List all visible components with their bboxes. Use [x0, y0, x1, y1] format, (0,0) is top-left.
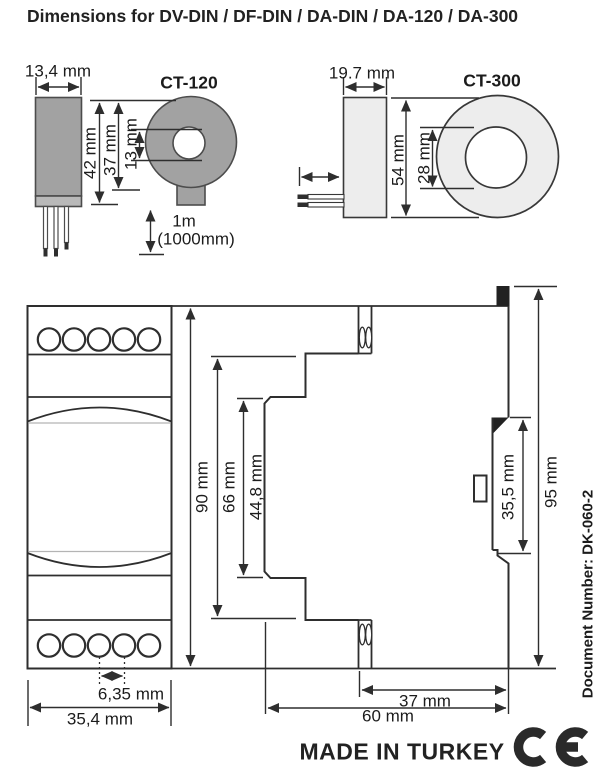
module-panel-height-label: 44,8 mm — [247, 454, 264, 520]
module-terminal-pitch-label: 6,35 mm — [98, 686, 164, 703]
side-terminal-bottom — [359, 620, 372, 669]
ct300-title: CT-300 — [463, 72, 520, 90]
module-overall-height-label: 95 mm — [543, 456, 560, 508]
module-front-height-label: 90 mm — [194, 461, 211, 513]
din-hook-catch — [493, 418, 509, 435]
module-overall-depth-label: 60 mm — [362, 708, 414, 725]
document-number-label: Document Number: DK-060-2 — [580, 490, 597, 698]
made-in-label: MADE IN TURKEY — [299, 739, 504, 766]
ct120-side-view — [36, 98, 82, 257]
ct300-wires — [298, 195, 345, 208]
module-body-height-label: 66 mm — [221, 461, 238, 513]
dimensions-drawing-page: Dimensions for DV-DIN / DF-DIN / DA-DIN … — [0, 0, 600, 774]
ct120-cable-length-label: 1m — [172, 213, 196, 230]
ct120-title: CT-120 — [160, 74, 217, 92]
module-rail-recess-label: 35,5 mm — [500, 454, 517, 520]
terminal-holes-bottom — [38, 634, 160, 656]
terminal-holes-top — [38, 328, 160, 350]
ct300-side-view — [298, 98, 387, 218]
ct120-wires — [44, 207, 69, 257]
ct300-width-dim-label: 19.7 mm — [329, 65, 395, 82]
ct120-cable-length-mm-label: (1000mm) — [157, 231, 234, 248]
ct300-hole-dim-label: 28 mm — [415, 132, 432, 184]
technical-drawing-canvas — [0, 0, 600, 774]
ct120-hole-dim-label: 13 mm — [122, 118, 139, 170]
ce-mark-icon — [518, 732, 585, 762]
ct120-width-dim-label: 13,4 mm — [25, 63, 91, 80]
module-front-view — [28, 306, 172, 687]
ct300-front-view — [437, 96, 559, 218]
ct120-front-view — [146, 97, 237, 206]
din-release-tab-top — [497, 286, 510, 306]
ct120-outer-dim-label: 37 mm — [102, 124, 119, 176]
ct120-height-dim-label: 42 mm — [82, 127, 99, 179]
side-terminal-top — [359, 306, 372, 354]
page-title: Dimensions for DV-DIN / DF-DIN / DA-DIN … — [27, 6, 518, 27]
ct300-height-dim-label: 54 mm — [389, 134, 406, 186]
din-clip-slider — [474, 476, 487, 502]
module-front-width-label: 35,4 mm — [67, 711, 133, 728]
